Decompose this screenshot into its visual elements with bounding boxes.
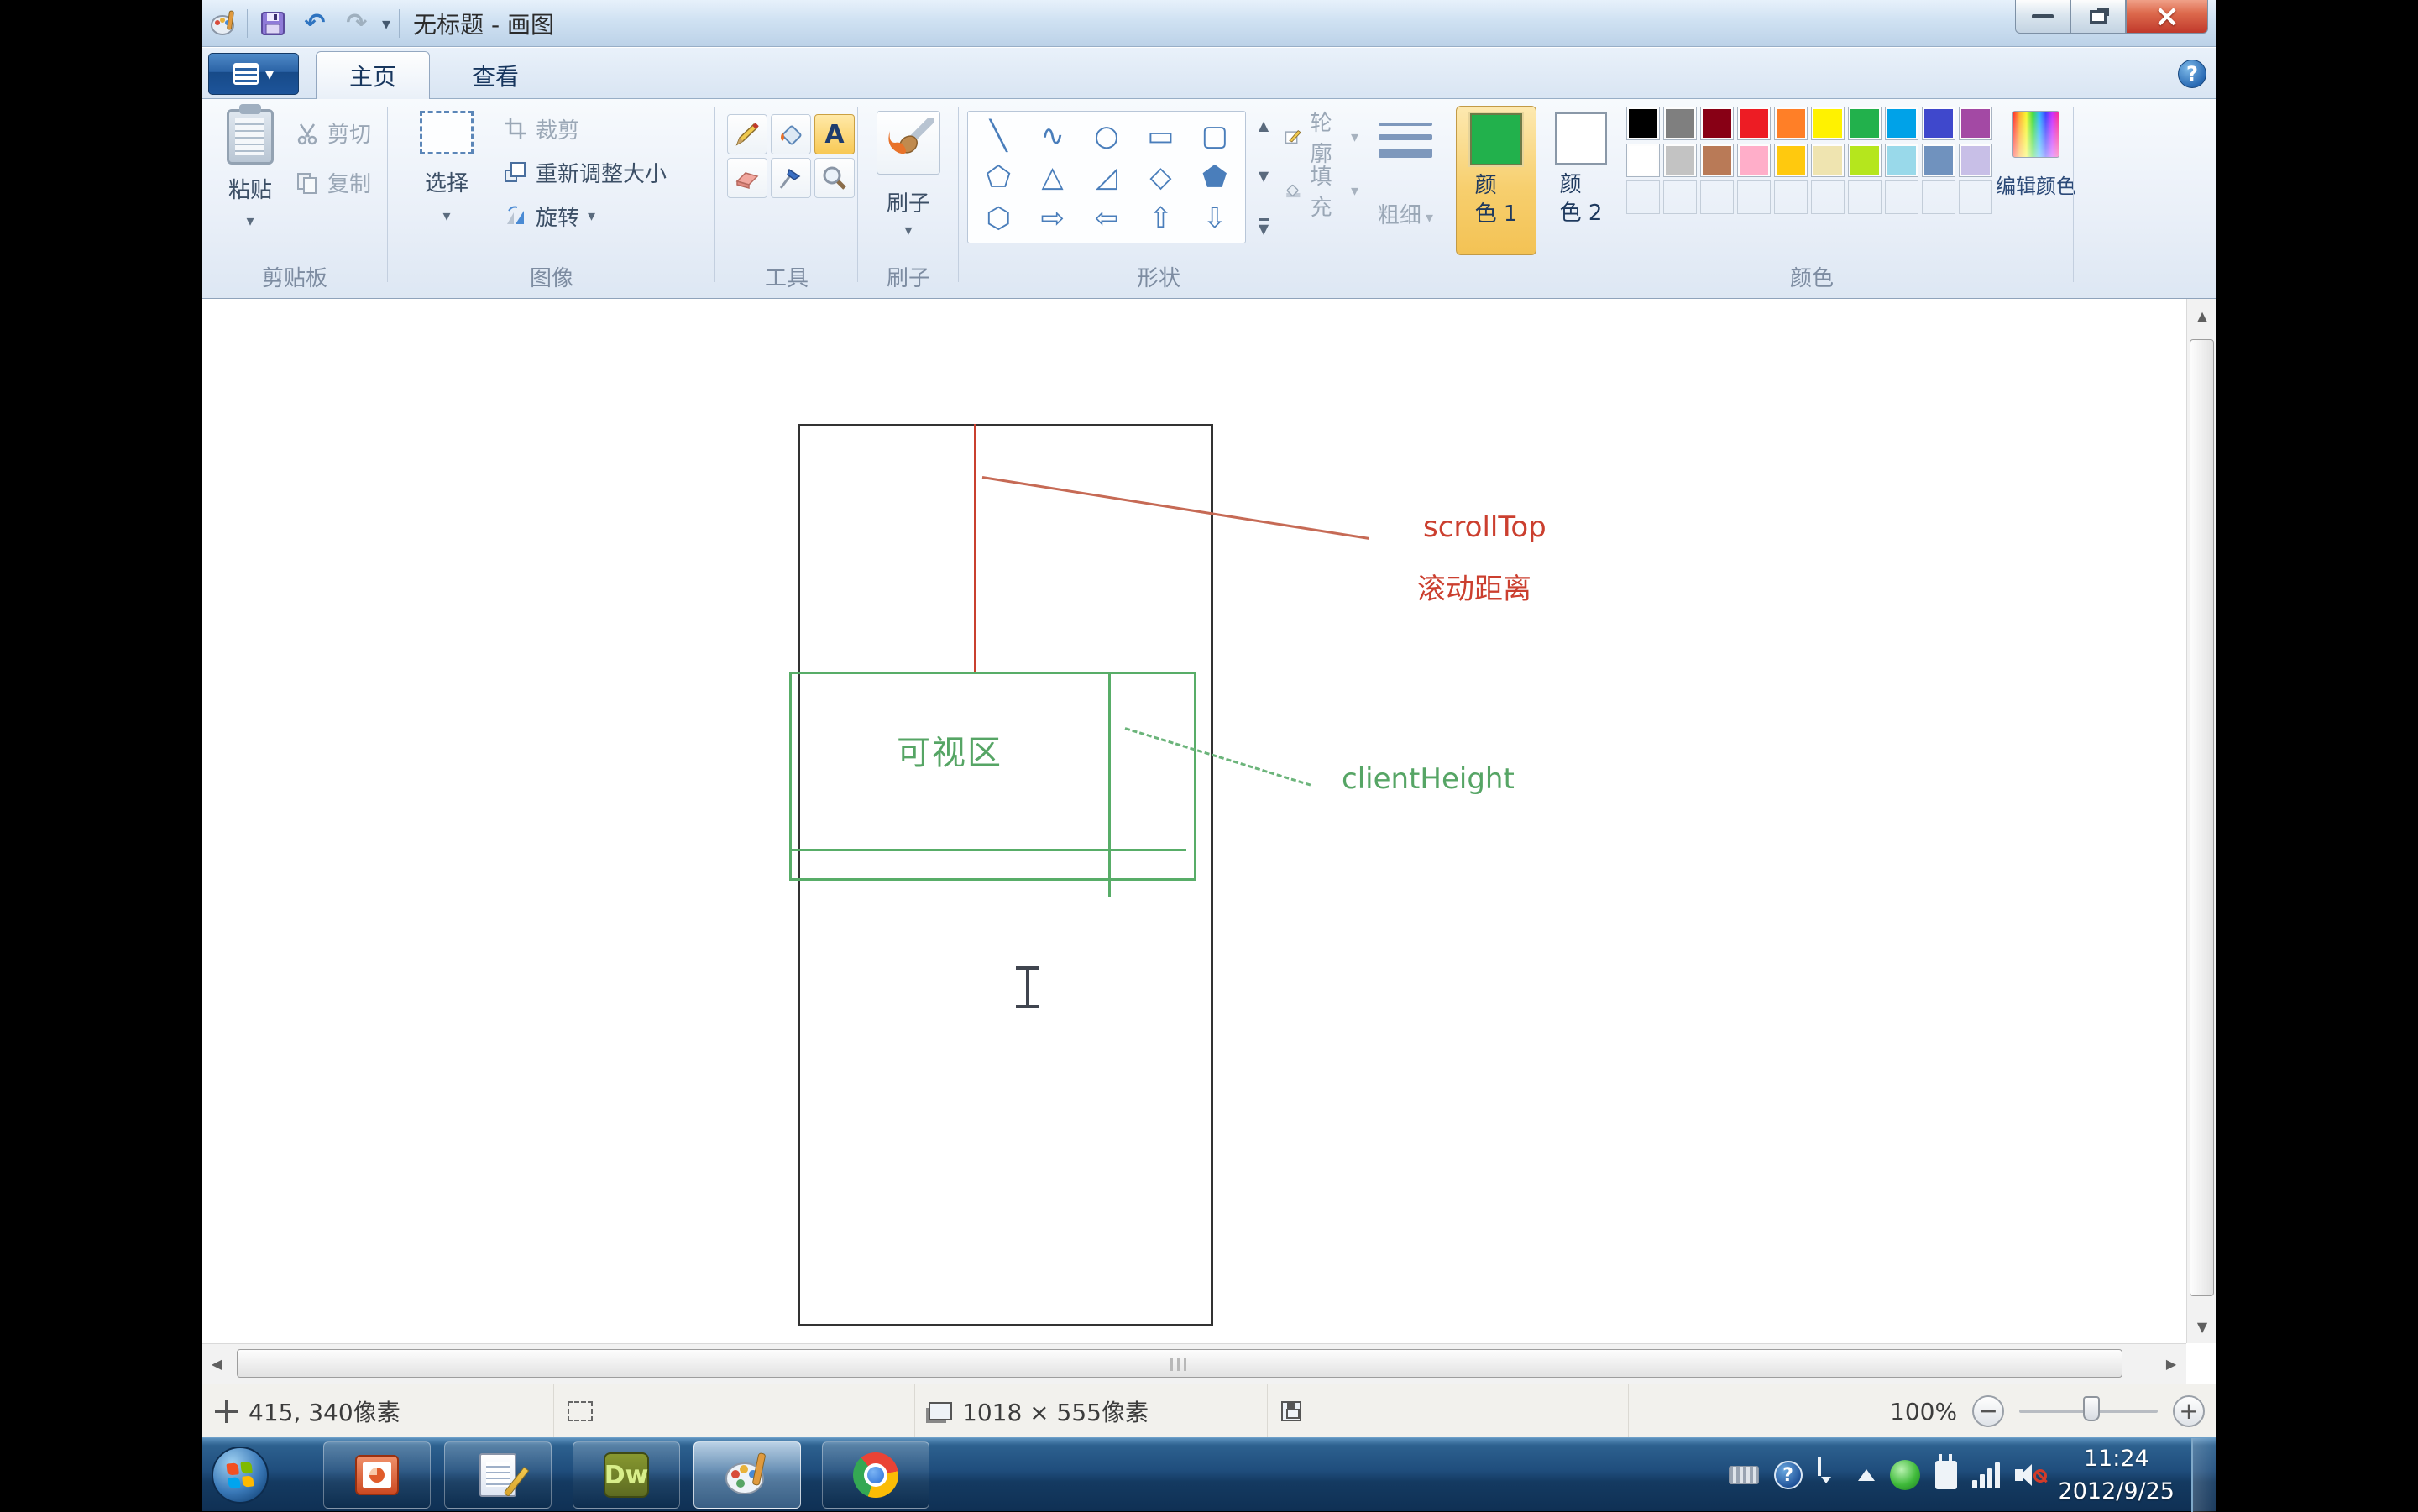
window-tray-icon[interactable]	[1818, 1458, 1843, 1492]
powerpoint-icon	[355, 1455, 399, 1495]
pencil-icon	[734, 121, 761, 148]
color2-label: 颜色 2	[1560, 171, 1603, 228]
show-hidden-icons-button[interactable]	[1858, 1469, 1875, 1481]
quick-access-dropdown[interactable]: ▾	[382, 13, 390, 34]
rotate-icon	[504, 204, 527, 228]
drawing-viewport-bottom-line	[792, 849, 1186, 851]
brush-button[interactable]	[877, 111, 940, 175]
zoom-in-button[interactable]: +	[2173, 1395, 2205, 1427]
cursor-position-icon	[215, 1400, 238, 1423]
color1-swatch	[1470, 113, 1522, 165]
copy-icon	[296, 171, 319, 195]
redo-button[interactable]: ↷	[340, 8, 374, 39]
drawing-label-clientheight: clientHeight	[1342, 762, 1515, 796]
copy-label: 复制	[327, 167, 371, 198]
chevron-down-icon	[1821, 1477, 1831, 1483]
eraser-icon	[734, 165, 761, 191]
brushes-label: 刷子	[858, 186, 959, 217]
canvas-size-value: 1018 × 555像素	[962, 1394, 1149, 1428]
cursor-position-value: 415, 340像素	[249, 1394, 400, 1428]
edit-colors-button[interactable]: 编辑颜色	[2000, 111, 2072, 199]
fill-tool-button[interactable]	[771, 114, 811, 154]
color2-swatch	[1555, 112, 1607, 165]
line-width-icon[interactable]	[1379, 123, 1432, 158]
palette-swatch-empty[interactable]	[1812, 181, 1844, 213]
eraser-tool-button[interactable]	[727, 158, 767, 198]
status-cursor-position: 415, 340像素	[201, 1384, 554, 1438]
scroll-up-arrow-icon[interactable]: ▲	[2187, 301, 2217, 331]
palette-swatch[interactable]	[1701, 107, 1733, 139]
palette-swatch-empty[interactable]	[1701, 181, 1733, 213]
color2-button[interactable]: 颜色 2	[1545, 106, 1617, 255]
horizontal-scrollbar-thumb[interactable]	[237, 1349, 2122, 1378]
palette-swatch-empty[interactable]	[1664, 181, 1696, 213]
drawing-label-scroll-distance: 滚动距离	[1417, 566, 1531, 607]
group-label-tools: 工具	[715, 261, 858, 292]
taskbar-item-chrome[interactable]	[822, 1441, 929, 1509]
clock[interactable]: 11:24 2012/9/25	[2059, 1442, 2175, 1508]
title-bar: ↶ ↷ ▾ 无标题 - 画图 ×	[201, 0, 2216, 47]
color1-button[interactable]: 颜色 1	[1456, 106, 1536, 255]
dreamweaver-icon: Dw	[604, 1452, 649, 1498]
notepad-icon	[479, 1453, 516, 1497]
palette-swatch[interactable]	[1627, 144, 1659, 176]
show-desktop-button[interactable]	[2191, 1438, 2216, 1512]
ribbon-tab-row: ▾ 主页 查看 ?	[201, 48, 2216, 99]
palette-swatch[interactable]	[1923, 144, 1955, 176]
crop-icon	[504, 117, 527, 140]
text-tool-icon: A	[824, 120, 844, 149]
shape-icon[interactable]: ○	[1094, 122, 1119, 150]
network-signal-icon[interactable]	[1972, 1462, 2000, 1488]
edit-colors-label: 编辑颜色	[1996, 170, 2076, 199]
shape-icon[interactable]: ◇	[1149, 163, 1171, 191]
desktop-screen: ↶ ↷ ▾ 无标题 - 画图 × ▾ 主页 查看 ? 粘贴 ▾	[201, 0, 2216, 1511]
chevron-down-icon: ▾	[1426, 209, 1433, 227]
status-file-size	[1268, 1384, 1629, 1438]
brush-icon	[883, 118, 934, 168]
shape-icon[interactable]: ╲	[990, 122, 1007, 150]
clock-time: 11:24	[2084, 1446, 2149, 1472]
chrome-icon	[853, 1452, 898, 1498]
quick-access-toolbar: ↶ ↷ ▾	[201, 8, 400, 39]
cut-label: 剪切	[327, 118, 371, 149]
palette-swatch-empty[interactable]	[1738, 181, 1770, 213]
close-icon: ×	[2154, 2, 2180, 32]
paste-button[interactable]: 粘贴 ▾	[212, 109, 289, 252]
tab-home[interactable]: 主页	[316, 51, 430, 99]
chevron-down-icon: ▾	[265, 64, 274, 84]
palette-swatch-empty[interactable]	[1960, 181, 1991, 213]
taskbar-item-notepad[interactable]	[444, 1441, 552, 1509]
shape-icon[interactable]: △	[1042, 163, 1064, 191]
palette-swatch[interactable]	[1738, 107, 1770, 139]
color-picker-tool-button[interactable]	[771, 158, 811, 198]
status-spacer	[1629, 1384, 1876, 1438]
tab-view[interactable]: 查看	[438, 51, 552, 99]
rotate-button[interactable]: 旋转 ▾	[504, 200, 667, 232]
group-label-colors: 颜色	[1627, 261, 1997, 292]
palette-swatch[interactable]	[1775, 107, 1807, 139]
chevron-down-icon: ▾	[588, 207, 595, 225]
drawing-label-scrolltop: scrollTop	[1423, 510, 1547, 544]
palette-swatch-empty[interactable]	[1923, 181, 1955, 213]
palette-swatch[interactable]	[1627, 107, 1659, 139]
rainbow-icon	[2012, 111, 2059, 158]
undo-button[interactable]: ↶	[298, 8, 332, 39]
muted-speaker-icon[interactable]	[2015, 1462, 2044, 1488]
palette-swatch[interactable]	[1775, 144, 1807, 176]
shape-icon[interactable]: ⇦	[1095, 204, 1119, 233]
close-button[interactable]: ×	[2126, 0, 2208, 34]
fill-label: 填充	[1311, 160, 1342, 222]
cut-button[interactable]: 剪切	[296, 118, 371, 149]
group-colors: 颜色 1 颜色 2 编辑颜色 颜色	[1452, 99, 2074, 297]
size-button[interactable]: 粗细 ▾	[1358, 198, 1452, 229]
palette-swatch-empty[interactable]	[1849, 181, 1881, 213]
group-brushes: 刷子 ▾ 刷子	[858, 99, 959, 297]
clipboard-icon	[227, 109, 274, 165]
horizontal-scrollbar[interactable]: ◀ ▶	[201, 1343, 2186, 1384]
resize-icon	[504, 160, 527, 184]
shape-icon[interactable]: ▭	[1147, 122, 1174, 150]
chevron-down-icon: ▾	[246, 212, 254, 230]
outline-icon	[1285, 125, 1302, 149]
help-tray-icon[interactable]: ?	[1774, 1461, 1803, 1489]
outline-label: 轮廓	[1311, 106, 1342, 168]
palette-swatch-empty[interactable]	[1886, 181, 1918, 213]
divider	[399, 9, 400, 38]
group-label-shapes: 形状	[959, 261, 1358, 292]
divider	[247, 9, 248, 38]
pencil-tool-button[interactable]	[727, 114, 767, 154]
status-bar: 415, 340像素 1018 × 555像素 100% − +	[201, 1384, 2216, 1437]
help-button[interactable]: ?	[2178, 60, 2206, 88]
paint-bucket-icon	[777, 121, 804, 148]
zoom-slider[interactable]	[2019, 1410, 2158, 1413]
text-tool-button[interactable]: A	[814, 114, 855, 154]
zoom-slider-thumb[interactable]	[2083, 1396, 2100, 1421]
shape-icon[interactable]: ◿	[1096, 163, 1117, 191]
palette-swatch[interactable]	[1886, 107, 1918, 139]
status-selection-size	[554, 1384, 915, 1438]
palette-swatch-empty[interactable]	[1775, 181, 1807, 213]
group-label-image: 图像	[388, 261, 715, 292]
taskbar: Dw ? 11:24 2012/9/25	[201, 1437, 2216, 1511]
resize-label: 重新调整大小	[536, 157, 667, 188]
window-title: 无标题 - 画图	[413, 7, 554, 40]
zoom-out-button[interactable]: −	[1972, 1395, 2004, 1427]
shape-icon[interactable]: ∿	[1040, 122, 1065, 150]
shapes-gallery[interactable]: ╲∿○▭▢⬠△◿◇⬟⬡⇨⇦⇧⇩	[967, 111, 1246, 243]
drawing-viewport-inner-line	[1108, 673, 1111, 897]
fill-icon	[1285, 179, 1302, 202]
palette-swatch[interactable]	[1923, 107, 1955, 139]
status-zoom: 100% − +	[1876, 1384, 2216, 1438]
palette-swatch-empty[interactable]	[1627, 181, 1659, 213]
canvas-size-icon	[929, 1402, 952, 1420]
power-plug-icon[interactable]	[1935, 1461, 1957, 1489]
taskbar-item-dreamweaver[interactable]: Dw	[573, 1441, 680, 1509]
chevron-down-icon: ▾	[858, 222, 959, 239]
group-image: 选择 ▾ 裁剪 重新调整大小 旋转 ▾ 图像	[388, 99, 715, 297]
outline-button[interactable]: 轮廓 ▾	[1285, 121, 1358, 153]
shapes-gallery-scroll: ▲ ▼ ▼	[1251, 111, 1276, 243]
paint-app-icon	[210, 9, 238, 38]
selection-size-icon	[568, 1401, 593, 1421]
group-label-brushes: 刷子	[858, 261, 959, 292]
restore-icon	[2090, 10, 2107, 24]
drawing-label-viewport: 可视区	[897, 725, 1002, 774]
shape-icon[interactable]: ▢	[1201, 122, 1228, 150]
rotate-label: 旋转	[536, 201, 579, 232]
magnifier-tool-button[interactable]	[814, 158, 855, 198]
palette-swatch[interactable]	[1886, 144, 1918, 176]
copy-button[interactable]: 复制	[296, 167, 371, 198]
app-menu-icon	[233, 63, 259, 85]
taskbar-item-powerpoint[interactable]	[323, 1441, 431, 1509]
group-clipboard: 粘贴 ▾ 剪切 复制 剪贴板	[201, 99, 388, 297]
select-label: 选择	[425, 166, 468, 197]
minimize-icon	[2032, 14, 2054, 18]
shape-icon[interactable]: ⬟	[1202, 163, 1227, 191]
window-controls: ×	[2015, 0, 2208, 34]
paint-icon	[724, 1452, 771, 1499]
scroll-up-icon[interactable]: ▲	[1259, 118, 1269, 133]
paste-label: 粘贴	[228, 173, 272, 204]
shape-icon[interactable]: ⇨	[1040, 204, 1065, 233]
zoom-level-value: 100%	[1890, 1398, 1957, 1426]
vertical-scrollbar[interactable]: ▲ ▼	[2186, 299, 2216, 1343]
group-label-clipboard: 剪贴板	[201, 261, 388, 292]
group-size: 粗细 ▾ 粗细	[1358, 99, 1452, 297]
gallery-more-icon[interactable]: ▼	[1259, 218, 1269, 237]
palette-swatch[interactable]	[1812, 107, 1844, 139]
palette-swatch[interactable]	[1849, 107, 1881, 139]
scroll-down-arrow-icon[interactable]: ▼	[2187, 1311, 2217, 1342]
palette-swatch[interactable]	[1812, 144, 1844, 176]
clock-date: 2012/9/25	[2059, 1478, 2175, 1504]
taskbar-item-paint[interactable]	[693, 1441, 801, 1509]
status-canvas-size: 1018 × 555像素	[915, 1384, 1268, 1438]
keyboard-tray-icon[interactable]	[1729, 1466, 1759, 1484]
magnifier-icon	[821, 165, 848, 191]
shape-icon[interactable]: ⇩	[1203, 204, 1227, 233]
palette-swatch[interactable]	[1960, 144, 1991, 176]
green-app-tray-icon[interactable]	[1890, 1460, 1920, 1490]
crop-label: 裁剪	[536, 113, 579, 144]
disk-icon	[1281, 1401, 1301, 1421]
minimize-button[interactable]	[2015, 0, 2070, 34]
ribbon: 粘贴 ▾ 剪切 复制 剪贴板 选择 ▾	[201, 99, 2216, 299]
save-button[interactable]	[256, 8, 290, 39]
divider	[2073, 107, 2074, 282]
scrollbar-grip	[1170, 1358, 1189, 1371]
group-shapes: ╲∿○▭▢⬠△◿◇⬟⬡⇨⇦⇧⇩ ▲ ▼ ▼ 轮廓 ▾ 填充 ▾ 形状	[959, 99, 1358, 297]
paint-canvas[interactable]: scrollTop 滚动距离 可视区 clientHeight	[201, 299, 2186, 1343]
windows-logo-icon	[227, 1462, 254, 1489]
eyedropper-icon	[777, 165, 804, 191]
text-cursor-ibeam	[1013, 966, 1043, 1008]
start-button[interactable]	[212, 1447, 269, 1504]
shape-icon[interactable]: ⬠	[986, 163, 1011, 191]
shape-icon[interactable]: ⇧	[1149, 204, 1173, 233]
chevron-down-icon: ▾	[442, 207, 450, 225]
select-button[interactable]: 选择 ▾	[403, 111, 490, 252]
shape-icon[interactable]: ⬡	[986, 204, 1011, 233]
palette-swatch[interactable]	[1960, 107, 1991, 139]
scroll-left-arrow-icon[interactable]: ◀	[201, 1348, 232, 1379]
vertical-scrollbar-thumb[interactable]	[2190, 339, 2214, 1296]
resize-button[interactable]: 重新调整大小	[504, 156, 667, 188]
system-tray: ? 11:24 2012/9/25	[1729, 1438, 2216, 1512]
restore-button[interactable]	[2070, 0, 2126, 34]
crop-button[interactable]: 裁剪	[504, 112, 667, 144]
palette-swatch[interactable]	[1849, 144, 1881, 176]
selection-rect-icon	[420, 111, 474, 154]
app-menu-button[interactable]: ▾	[208, 53, 299, 95]
group-tools: A 工具	[715, 99, 858, 297]
palette-swatch[interactable]	[1701, 144, 1733, 176]
scroll-right-arrow-icon[interactable]: ▶	[2156, 1348, 2186, 1379]
palette-swatch[interactable]	[1664, 107, 1696, 139]
scissors-icon	[296, 122, 319, 145]
scroll-down-icon[interactable]: ▼	[1259, 168, 1269, 184]
palette-swatch[interactable]	[1738, 144, 1770, 176]
size-label: 粗细	[1378, 203, 1421, 228]
palette-swatch[interactable]	[1664, 144, 1696, 176]
drawing-scrolltop-line	[974, 424, 976, 673]
color-palette	[1627, 107, 1997, 218]
fill-shape-button[interactable]: 填充 ▾	[1285, 175, 1358, 207]
color1-label: 颜色 1	[1475, 172, 1518, 229]
